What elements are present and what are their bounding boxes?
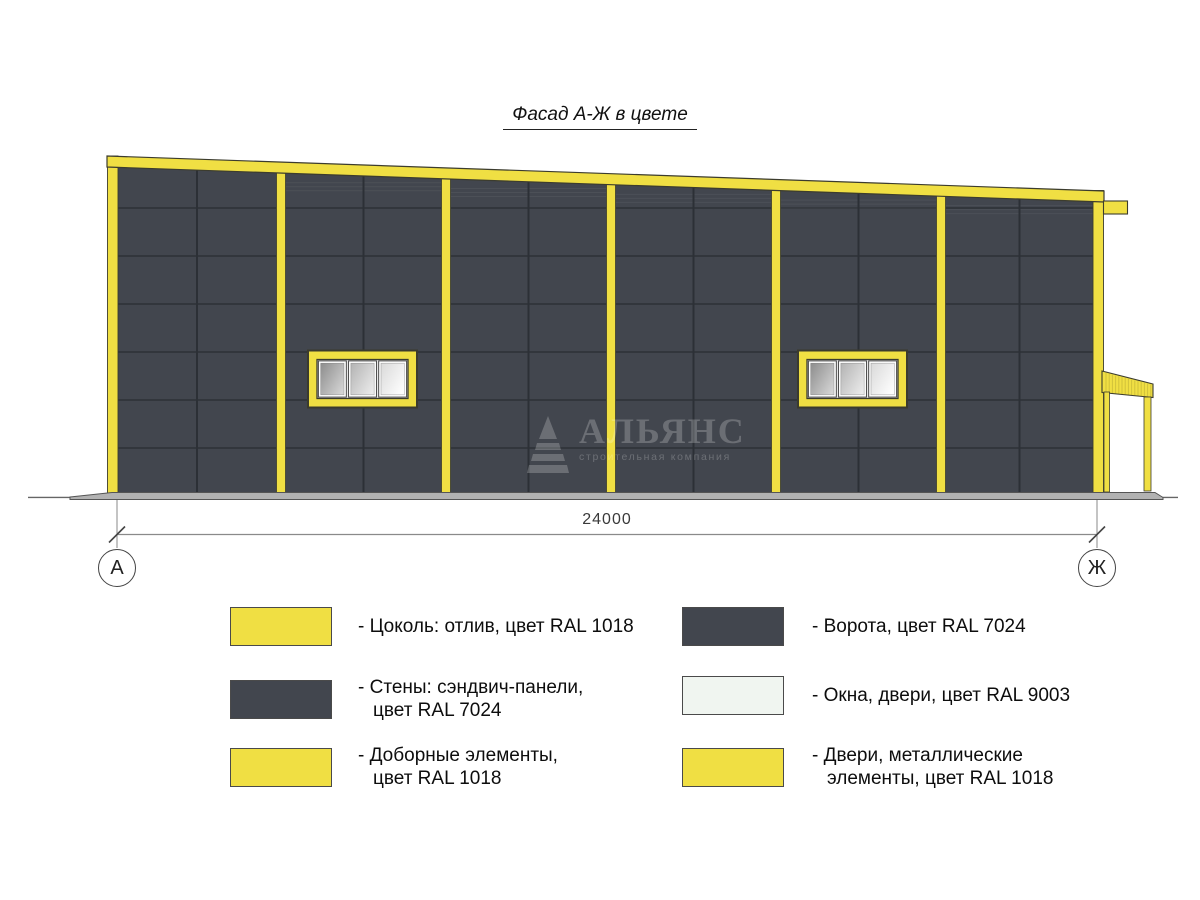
facade-drawing-sheet: Фасад А-Ж в цвете АЛЬЯНС строительная ко…	[0, 0, 1200, 900]
legend-swatch-ral9003	[682, 676, 784, 715]
roof-overhang	[1104, 201, 1128, 214]
legend-swatch-ral7024	[230, 680, 332, 719]
legend-swatch-ral1018	[682, 748, 784, 787]
axis-marker-a: А	[98, 549, 136, 587]
facade-wall	[113, 161, 1098, 494]
legend-label-line2: элементы, цвет RAL 1018	[812, 767, 1053, 790]
legend-swatch-ral7024	[682, 607, 784, 646]
legend-item-plinth: - Цоколь: отлив, цвет RAL 1018	[230, 607, 700, 646]
window-1-pane-glass	[321, 363, 344, 395]
corner-trim-left	[108, 156, 119, 494]
legend-label: - Стены: сэндвич-панели,	[358, 676, 583, 699]
legend-item-windows: - Окна, двери, цвет RAL 9003	[682, 676, 1152, 715]
plinth-strip	[70, 493, 1163, 500]
legend-swatch-ral1018	[230, 748, 332, 787]
legend-label-line2: цвет RAL 7024	[358, 699, 583, 722]
canopy-post-left	[1104, 392, 1110, 492]
legend-label: - Двери, металлические	[812, 744, 1053, 767]
trim-strip	[772, 184, 781, 494]
legend-label: - Цоколь: отлив, цвет RAL 1018	[358, 615, 634, 638]
axis-marker-zh-label: Ж	[1088, 557, 1106, 580]
corner-trim-right	[1093, 191, 1104, 495]
legend-label: - Окна, двери, цвет RAL 9003	[812, 684, 1070, 707]
axis-marker-a-label: А	[110, 557, 123, 580]
dimension-value: 24000	[537, 511, 677, 529]
legend-item-doors: - Двери, металлические элементы, цвет RA…	[682, 744, 1152, 790]
legend-item-gates: - Ворота, цвет RAL 7024	[682, 607, 1152, 646]
trim-strip	[442, 173, 451, 494]
axis-marker-zh: Ж	[1078, 549, 1116, 587]
window-1-pane-glass	[381, 363, 404, 395]
drawing-title-text: Фасад А-Ж в цвете	[503, 104, 697, 130]
trim-strip	[277, 167, 286, 494]
legend-item-trim: - Доборные элементы, цвет RAL 1018	[230, 744, 700, 790]
legend-swatch-ral1018	[230, 607, 332, 646]
trim-strip	[607, 179, 616, 494]
legend-label: - Ворота, цвет RAL 7024	[812, 615, 1026, 638]
canopy-post-right	[1144, 397, 1151, 491]
window-2-pane-glass	[811, 363, 834, 395]
window-2-pane-glass	[871, 363, 894, 395]
window-1-pane-glass	[351, 363, 374, 395]
legend-label-line2: цвет RAL 1018	[358, 767, 558, 790]
legend-label: - Доборные элементы,	[358, 744, 558, 767]
drawing-title: Фасад А-Ж в цвете	[0, 104, 1200, 130]
trim-strip	[937, 190, 946, 494]
window-2-pane-glass	[841, 363, 864, 395]
legend-item-walls: - Стены: сэндвич-панели, цвет RAL 7024	[230, 676, 700, 722]
